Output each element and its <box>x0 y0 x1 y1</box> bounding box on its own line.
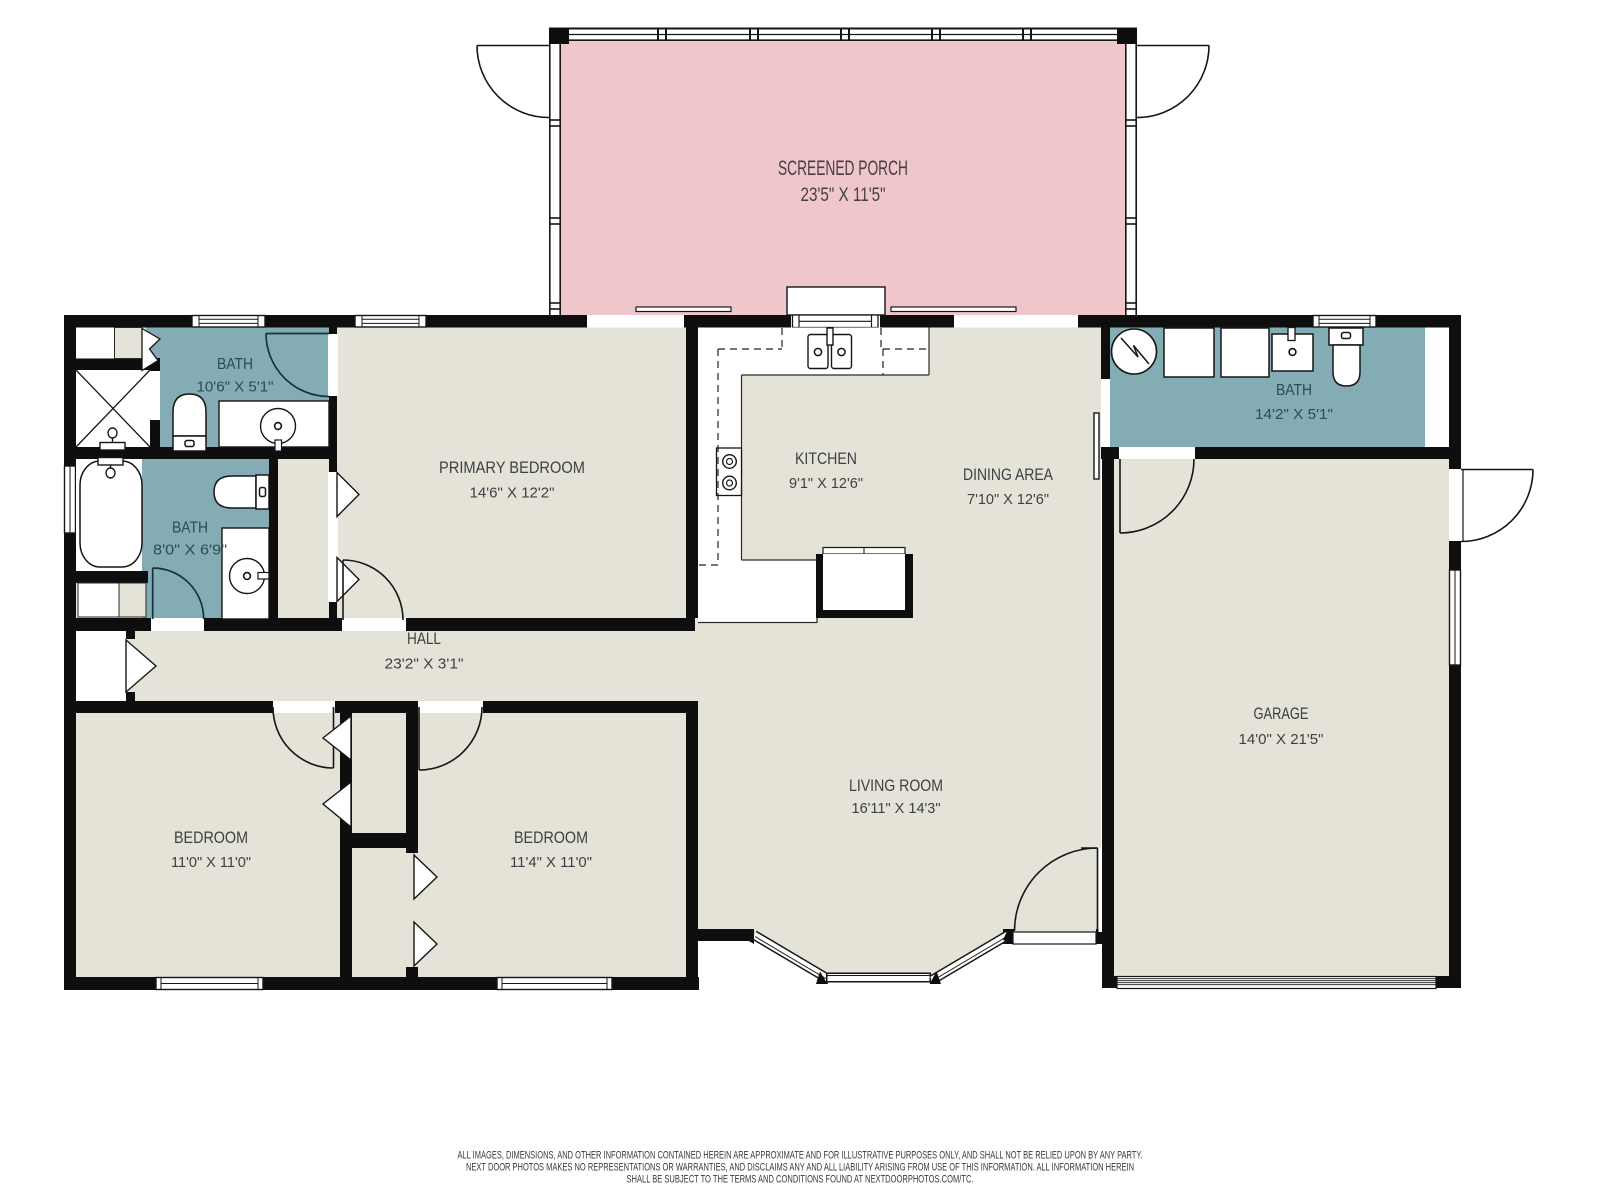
svg-text:SCREENED PORCH: SCREENED PORCH <box>778 157 908 180</box>
svg-text:SHALL BE SUBJECT TO THE TERMS: SHALL BE SUBJECT TO THE TERMS AND CONDIT… <box>627 1174 974 1186</box>
svg-text:9'1" X 12'6": 9'1" X 12'6" <box>789 475 863 492</box>
svg-text:DINING AREA: DINING AREA <box>963 465 1054 484</box>
svg-text:HALL: HALL <box>407 629 441 648</box>
svg-text:10'6" X 5'1": 10'6" X 5'1" <box>197 380 274 396</box>
svg-text:BATH: BATH <box>217 356 253 373</box>
svg-text:NEXT DOOR PHOTOS MAKES NO REPR: NEXT DOOR PHOTOS MAKES NO REPRESENTATION… <box>466 1162 1134 1174</box>
svg-text:BATH: BATH <box>172 520 208 537</box>
svg-text:11'4" X 11'0": 11'4" X 11'0" <box>510 854 592 871</box>
svg-text:14'0" X 21'5": 14'0" X 21'5" <box>1239 731 1324 748</box>
svg-text:GARAGE: GARAGE <box>1254 704 1309 723</box>
svg-text:14'6" X 12'2": 14'6" X 12'2" <box>470 485 555 502</box>
svg-text:BATH: BATH <box>1276 382 1312 399</box>
svg-text:23'5" X 11'5": 23'5" X 11'5" <box>801 185 886 206</box>
svg-text:8'0" X 6'9": 8'0" X 6'9" <box>153 543 227 559</box>
svg-text:KITCHEN: KITCHEN <box>795 449 857 468</box>
svg-text:BEDROOM: BEDROOM <box>174 828 248 847</box>
svg-text:ALL IMAGES, DIMENSIONS, AND OT: ALL IMAGES, DIMENSIONS, AND OTHER INFORM… <box>458 1150 1143 1162</box>
svg-text:LIVING ROOM: LIVING ROOM <box>849 776 943 795</box>
svg-text:7'10" X 12'6": 7'10" X 12'6" <box>967 491 1049 508</box>
svg-text:PRIMARY BEDROOM: PRIMARY BEDROOM <box>439 458 585 477</box>
svg-text:BEDROOM: BEDROOM <box>514 828 588 847</box>
svg-text:23'2" X 3'1": 23'2" X 3'1" <box>385 656 464 673</box>
svg-text:14'2" X 5'1": 14'2" X 5'1" <box>1255 407 1333 423</box>
svg-text:16'11" X 14'3": 16'11" X 14'3" <box>852 800 941 817</box>
svg-text:11'0" X 11'0": 11'0" X 11'0" <box>171 854 251 871</box>
